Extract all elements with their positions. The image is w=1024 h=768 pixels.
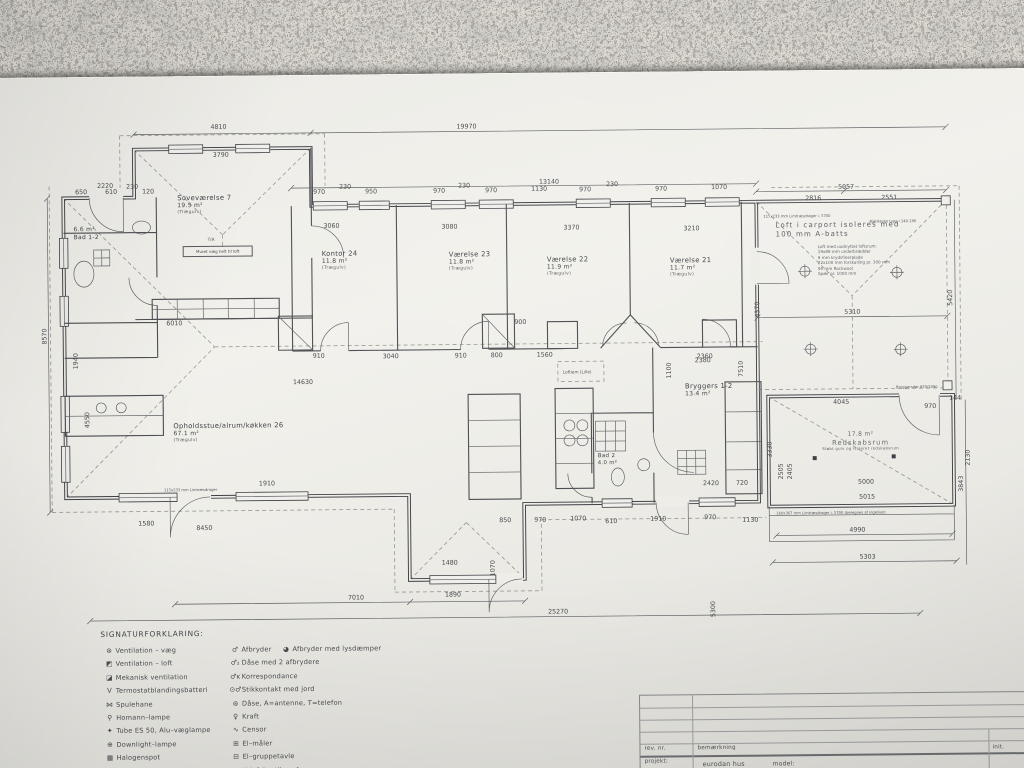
- legend-label: Spulehane: [116, 700, 153, 708]
- room-label-redskabsrum: 17.8 m² Redskabsrum Støbt gulv og isoler…: [801, 430, 919, 452]
- rinse-tap-icon: ⋈: [103, 700, 116, 708]
- dim-text: 2551: [881, 194, 897, 201]
- dim-text: 3210: [683, 225, 699, 232]
- dim-text: 1910: [259, 480, 275, 487]
- legend-item: ♂₂Dåse med 2 afbrydere: [229, 657, 489, 667]
- dim-text: 2420: [703, 480, 719, 487]
- legend-item: ♂ᴋKorrespondance: [229, 670, 489, 680]
- legend-label: Stikkontakt med jord: [242, 685, 315, 694]
- dim-text: 970: [579, 186, 591, 193]
- legend-label: Dåse med 2 afbrydere: [242, 658, 320, 667]
- dim-text: 1910: [650, 516, 666, 523]
- room-floor: (Trægulv): [173, 437, 283, 444]
- dim-text: 2380: [695, 357, 711, 364]
- legend-item: ⊟El–gruppetavle: [230, 750, 490, 760]
- legend-label: El–gruppetavle: [243, 752, 295, 760]
- dim-text: 6010: [166, 320, 182, 327]
- dim-text: 2405: [787, 463, 794, 479]
- legend-item: ∿Censor: [229, 724, 489, 734]
- legend-item: ⊕Downlight–lampe: [103, 739, 231, 748]
- dim-text: 1070: [490, 560, 497, 576]
- room-name: Bad 1-2: [74, 233, 99, 241]
- room-label-vaerelse21: Værelse 21 11.7 m² (Trægulv): [670, 256, 712, 278]
- model-label: model:: [773, 760, 795, 767]
- wall-lamp-icon: ✦: [103, 727, 116, 735]
- legend-item: ⊛Ventilation – væg: [102, 646, 230, 655]
- dim-text: 4990: [849, 527, 865, 534]
- dim-text: 3370: [563, 224, 579, 231]
- legend-item: ⋈Spulehane: [103, 699, 231, 708]
- legend-item: ✦Tube ES 50, Alu–væglampe: [103, 726, 231, 735]
- dim-text: 3040: [383, 353, 399, 360]
- dim-text: 1070: [570, 515, 586, 522]
- room-name: Opholdsstue/alrum/køkken 26: [173, 421, 283, 431]
- dim-text: 3060: [323, 223, 339, 230]
- projekt-value: eurodan hus: [703, 760, 745, 768]
- legend-item: ⊙♂Stikkontakt med jord: [229, 683, 489, 693]
- dim-text: 3080: [441, 224, 457, 231]
- legend-item: ◪Mekanisk ventilation: [103, 673, 231, 682]
- dimmer-switch-icon: ◕: [279, 645, 292, 653]
- projekt-label: projekt:: [645, 759, 668, 765]
- dim-text: 910: [455, 352, 467, 359]
- legend-label: Mekanisk ventilation: [116, 673, 188, 682]
- room-label-kontor: Kontor 24 11.8 m² (Trægulv): [322, 249, 358, 271]
- room-label-vaerelse22: Værelse 22 11.9 m² (Trægulv): [547, 255, 589, 277]
- dim-text: 230: [606, 181, 618, 188]
- legend-item: ♂Afbryder◕Afbryder med lysdæmper: [228, 643, 488, 653]
- power-icon: ♀: [229, 713, 242, 721]
- legend-item: ▦Halogenspot: [104, 753, 232, 762]
- dim-text: 970: [485, 187, 497, 194]
- switch-icon: ♂: [228, 646, 241, 654]
- dim-text: 3330: [767, 441, 774, 457]
- legend-label: Ventilation – loft: [116, 660, 173, 669]
- dim-text: 910: [313, 353, 325, 360]
- legend-label: Afbryder med lysdæmper: [292, 644, 381, 653]
- dim-text: 1100: [666, 362, 673, 378]
- room-area: 13.4 m²: [685, 390, 733, 398]
- dim-text: 800: [491, 352, 503, 359]
- dim-text: 970: [704, 514, 716, 521]
- carport-insulation-note: Loft i carport isoleres med 100 mm A-bat…: [775, 220, 956, 278]
- dim-text: 1940: [73, 353, 80, 369]
- room-name: Kontor 24: [322, 249, 358, 258]
- dim-text: 950: [365, 188, 377, 195]
- dim-text: 970: [313, 189, 325, 196]
- legend-label: El–måler: [242, 739, 272, 747]
- dim-text: 7510: [738, 361, 745, 377]
- limtrae-top-note: 115x233 mm Limtræsdrager i. 5700: [763, 214, 831, 219]
- legend-left-column: ⊛Ventilation – væg ◩Ventilation – loft ◪…: [102, 646, 231, 768]
- fixtures: [63, 215, 762, 503]
- bemaerkning-label: bemærkning: [697, 745, 735, 751]
- dim-text: 610: [605, 518, 617, 525]
- dim-text: 610: [105, 189, 117, 196]
- legend-label: Tube ES 50, Alu–væglampe: [116, 726, 210, 735]
- legend-item: ◩Ventilation – loft: [103, 659, 231, 668]
- blueprint-sheet: 19970 4810 3790 13140 2220 650 610 230 1…: [0, 69, 1024, 768]
- dim-text: 4370: [754, 302, 761, 318]
- downlight-icon: ⊕: [103, 741, 116, 749]
- dim-text: 1070: [711, 184, 727, 191]
- legend-item: VTermostatblandingsbatteri: [103, 686, 231, 695]
- muret-vaeg-note: Muret væg helt til loft: [183, 245, 253, 257]
- dim-text: 120: [142, 188, 154, 195]
- dim-text: 1130: [531, 186, 547, 193]
- legend-signaturforklaring: SIGNATURFORKLARING: ⊛Ventilation – væg ◩…: [100, 626, 490, 646]
- legend-label: Korrespondance: [242, 672, 298, 681]
- dim-text: 25270: [548, 608, 568, 615]
- dim-text: 8450: [196, 525, 212, 532]
- dim-text: 900: [514, 319, 526, 326]
- legend-item: ♀Kraft: [229, 710, 489, 720]
- room-floor: (Trægulv): [670, 272, 712, 278]
- legend-label: Kraft: [242, 712, 259, 720]
- halogen-spot-icon: ▦: [104, 754, 117, 762]
- dim-text: 2505: [778, 463, 785, 479]
- legend-label: Homann–lampe: [116, 713, 170, 722]
- blueprint-paper: 19970 4810 3790 13140 2220 650 610 230 1…: [0, 68, 1024, 768]
- double-switch-icon: ♂₂: [229, 659, 242, 667]
- title-block-line: [641, 751, 1024, 757]
- dim-text: 4550: [84, 412, 91, 428]
- room-label-bad1: 6.6 m² Bad 1-2: [73, 226, 99, 241]
- legend-label: Halogenspot: [117, 754, 161, 762]
- legend-item: ⚲Homann–lampe: [103, 713, 231, 722]
- room-floor: (Trægulv): [322, 265, 358, 271]
- legend-label: Afbryder: [241, 645, 271, 653]
- dim-text: 3843: [958, 476, 965, 492]
- legend-label: Termostatblandingsbatteri: [116, 686, 208, 695]
- room-name: Værelse 23: [449, 250, 491, 259]
- legend-label: Ventilation – væg: [115, 646, 176, 655]
- legend-item: ⊠Udeføler til gasfyr: [230, 764, 490, 768]
- dimension-labels: 19970 4810 3790 13140 2220 650 610 230 1…: [39, 117, 973, 624]
- ventilation-ceiling-icon: ◩: [103, 660, 116, 668]
- legend-right-column: ♂Afbryder◕Afbryder med lysdæmper ♂₂Dåse …: [228, 643, 489, 768]
- rev-nr-label: rev. nr.: [644, 746, 665, 752]
- ventilation-wall-icon: ⊛: [102, 647, 115, 655]
- dim-text: 720: [736, 480, 748, 487]
- bryggersdoer-note: Bryggersdør 870/2090: [896, 385, 938, 389]
- title-block-line: [640, 739, 1024, 744]
- room-floor: (Trægulv): [449, 266, 491, 272]
- dim-text: 3790: [213, 152, 229, 159]
- legend-label: Dåse, A=antenne, T=telefon: [242, 698, 342, 707]
- dim-text: 4045: [833, 399, 849, 406]
- dim-text: 14630: [293, 379, 313, 386]
- dim-text: 1560: [537, 352, 553, 359]
- title-block: rev. nr. bemærkning init. projekt: eurod…: [639, 690, 1024, 768]
- legend-item: ⊞El–måler: [229, 737, 489, 747]
- dim-text: 1130: [742, 517, 758, 524]
- dim-text: 970: [433, 188, 445, 195]
- legend-item: ⊛Dåse, A=antenne, T=telefon: [229, 697, 489, 707]
- dim-text: 13140: [539, 179, 559, 186]
- dim-text: 5057: [838, 184, 854, 191]
- dim-text: 970: [924, 403, 936, 410]
- dim-text: 5000: [858, 479, 874, 486]
- thermostat-mixer-icon: V: [103, 687, 116, 695]
- room-label-bad2: Bad 2 4.0 m²: [598, 453, 618, 467]
- limtrae-bottom-note: 115x233 mm Limtræsdrager: [164, 488, 218, 493]
- room-label-bryggers: Bryggers 1-2 13.4 m²: [685, 382, 733, 398]
- electricity-meter-icon: ⊞: [229, 739, 242, 747]
- room-name: Soveværelse 7: [177, 194, 231, 203]
- room-name: Værelse 22: [547, 255, 589, 264]
- dim-text: 230: [126, 184, 138, 191]
- dim-text: 5303: [860, 554, 876, 561]
- dim-text: 5310: [844, 309, 860, 316]
- title-block-line: [640, 727, 1024, 732]
- dim-text: 5015: [859, 494, 875, 501]
- homann-lamp-icon: ⚲: [103, 714, 116, 722]
- dim-text: 144: [949, 395, 961, 402]
- dim-text: 19970: [456, 123, 476, 130]
- dim-text: 1580: [138, 520, 154, 527]
- room-floor: (Trægulv): [177, 210, 231, 216]
- dim-text: 850: [499, 517, 511, 524]
- dim-text: 650: [75, 189, 87, 196]
- dim-text: 5300: [710, 601, 717, 617]
- title-block-line: [640, 703, 1024, 708]
- room-name: Bryggers 1-2: [685, 382, 733, 391]
- dim-text: 2130: [965, 450, 972, 466]
- room-area: 4.0 m²: [598, 460, 618, 467]
- dim-text: 230: [458, 182, 470, 189]
- legend-label: Censor: [242, 726, 266, 734]
- room-name: Værelse 21: [670, 256, 712, 265]
- init-label: init.: [992, 744, 1004, 750]
- legend-label: Downlight–lampe: [116, 740, 176, 749]
- carport-buildup-notes: Loft med uudnyttet loftsrum: 19x88 mm un…: [818, 243, 956, 277]
- grounded-socket-icon: ⊙♂: [229, 686, 242, 694]
- dim-text: 1890: [445, 592, 461, 599]
- ta-marker: T/A: [207, 237, 215, 242]
- dim-text: 4810: [210, 124, 226, 131]
- floor-plan-photo: 19970 4810 3790 13140 2220 650 610 230 1…: [0, 0, 1024, 768]
- carport-note-line2: 100 mm A-batts: [776, 229, 956, 240]
- dim-text: 2816: [805, 195, 821, 202]
- title-block-line: [640, 715, 1024, 720]
- room-floor: (Trægulv): [547, 271, 589, 277]
- loftlem-note: Loftlem (Lille): [563, 369, 592, 374]
- two-way-switch-icon: ♂ᴋ: [229, 672, 242, 680]
- room-area: 6.6 m²: [73, 226, 98, 234]
- mechanical-ventilation-icon: ◪: [103, 674, 116, 682]
- dim-text: 5420: [947, 290, 954, 306]
- dim-text: 970: [534, 517, 546, 524]
- room-label-vaerelse23: Værelse 23 11.8 m² (Trægulv): [449, 250, 491, 272]
- title-block-line: [988, 728, 989, 768]
- dim-text: 1480: [442, 560, 458, 567]
- dim-text: 970: [655, 186, 667, 193]
- dim-text: 7010: [348, 594, 364, 601]
- room-label-opholdsstue: Opholdsstue/alrum/køkken 26 67.1 m² (Træ…: [173, 421, 283, 444]
- antenna-socket-icon: ⊛: [229, 699, 242, 707]
- distribution-board-icon: ⊟: [230, 753, 243, 761]
- dim-text: 8570: [41, 328, 48, 344]
- room-label-sovevaerelse: Soveværelse 7 19.5 m² (Trægulv): [177, 194, 231, 216]
- sensor-icon: ∿: [229, 726, 242, 734]
- dim-text: 230: [339, 184, 351, 191]
